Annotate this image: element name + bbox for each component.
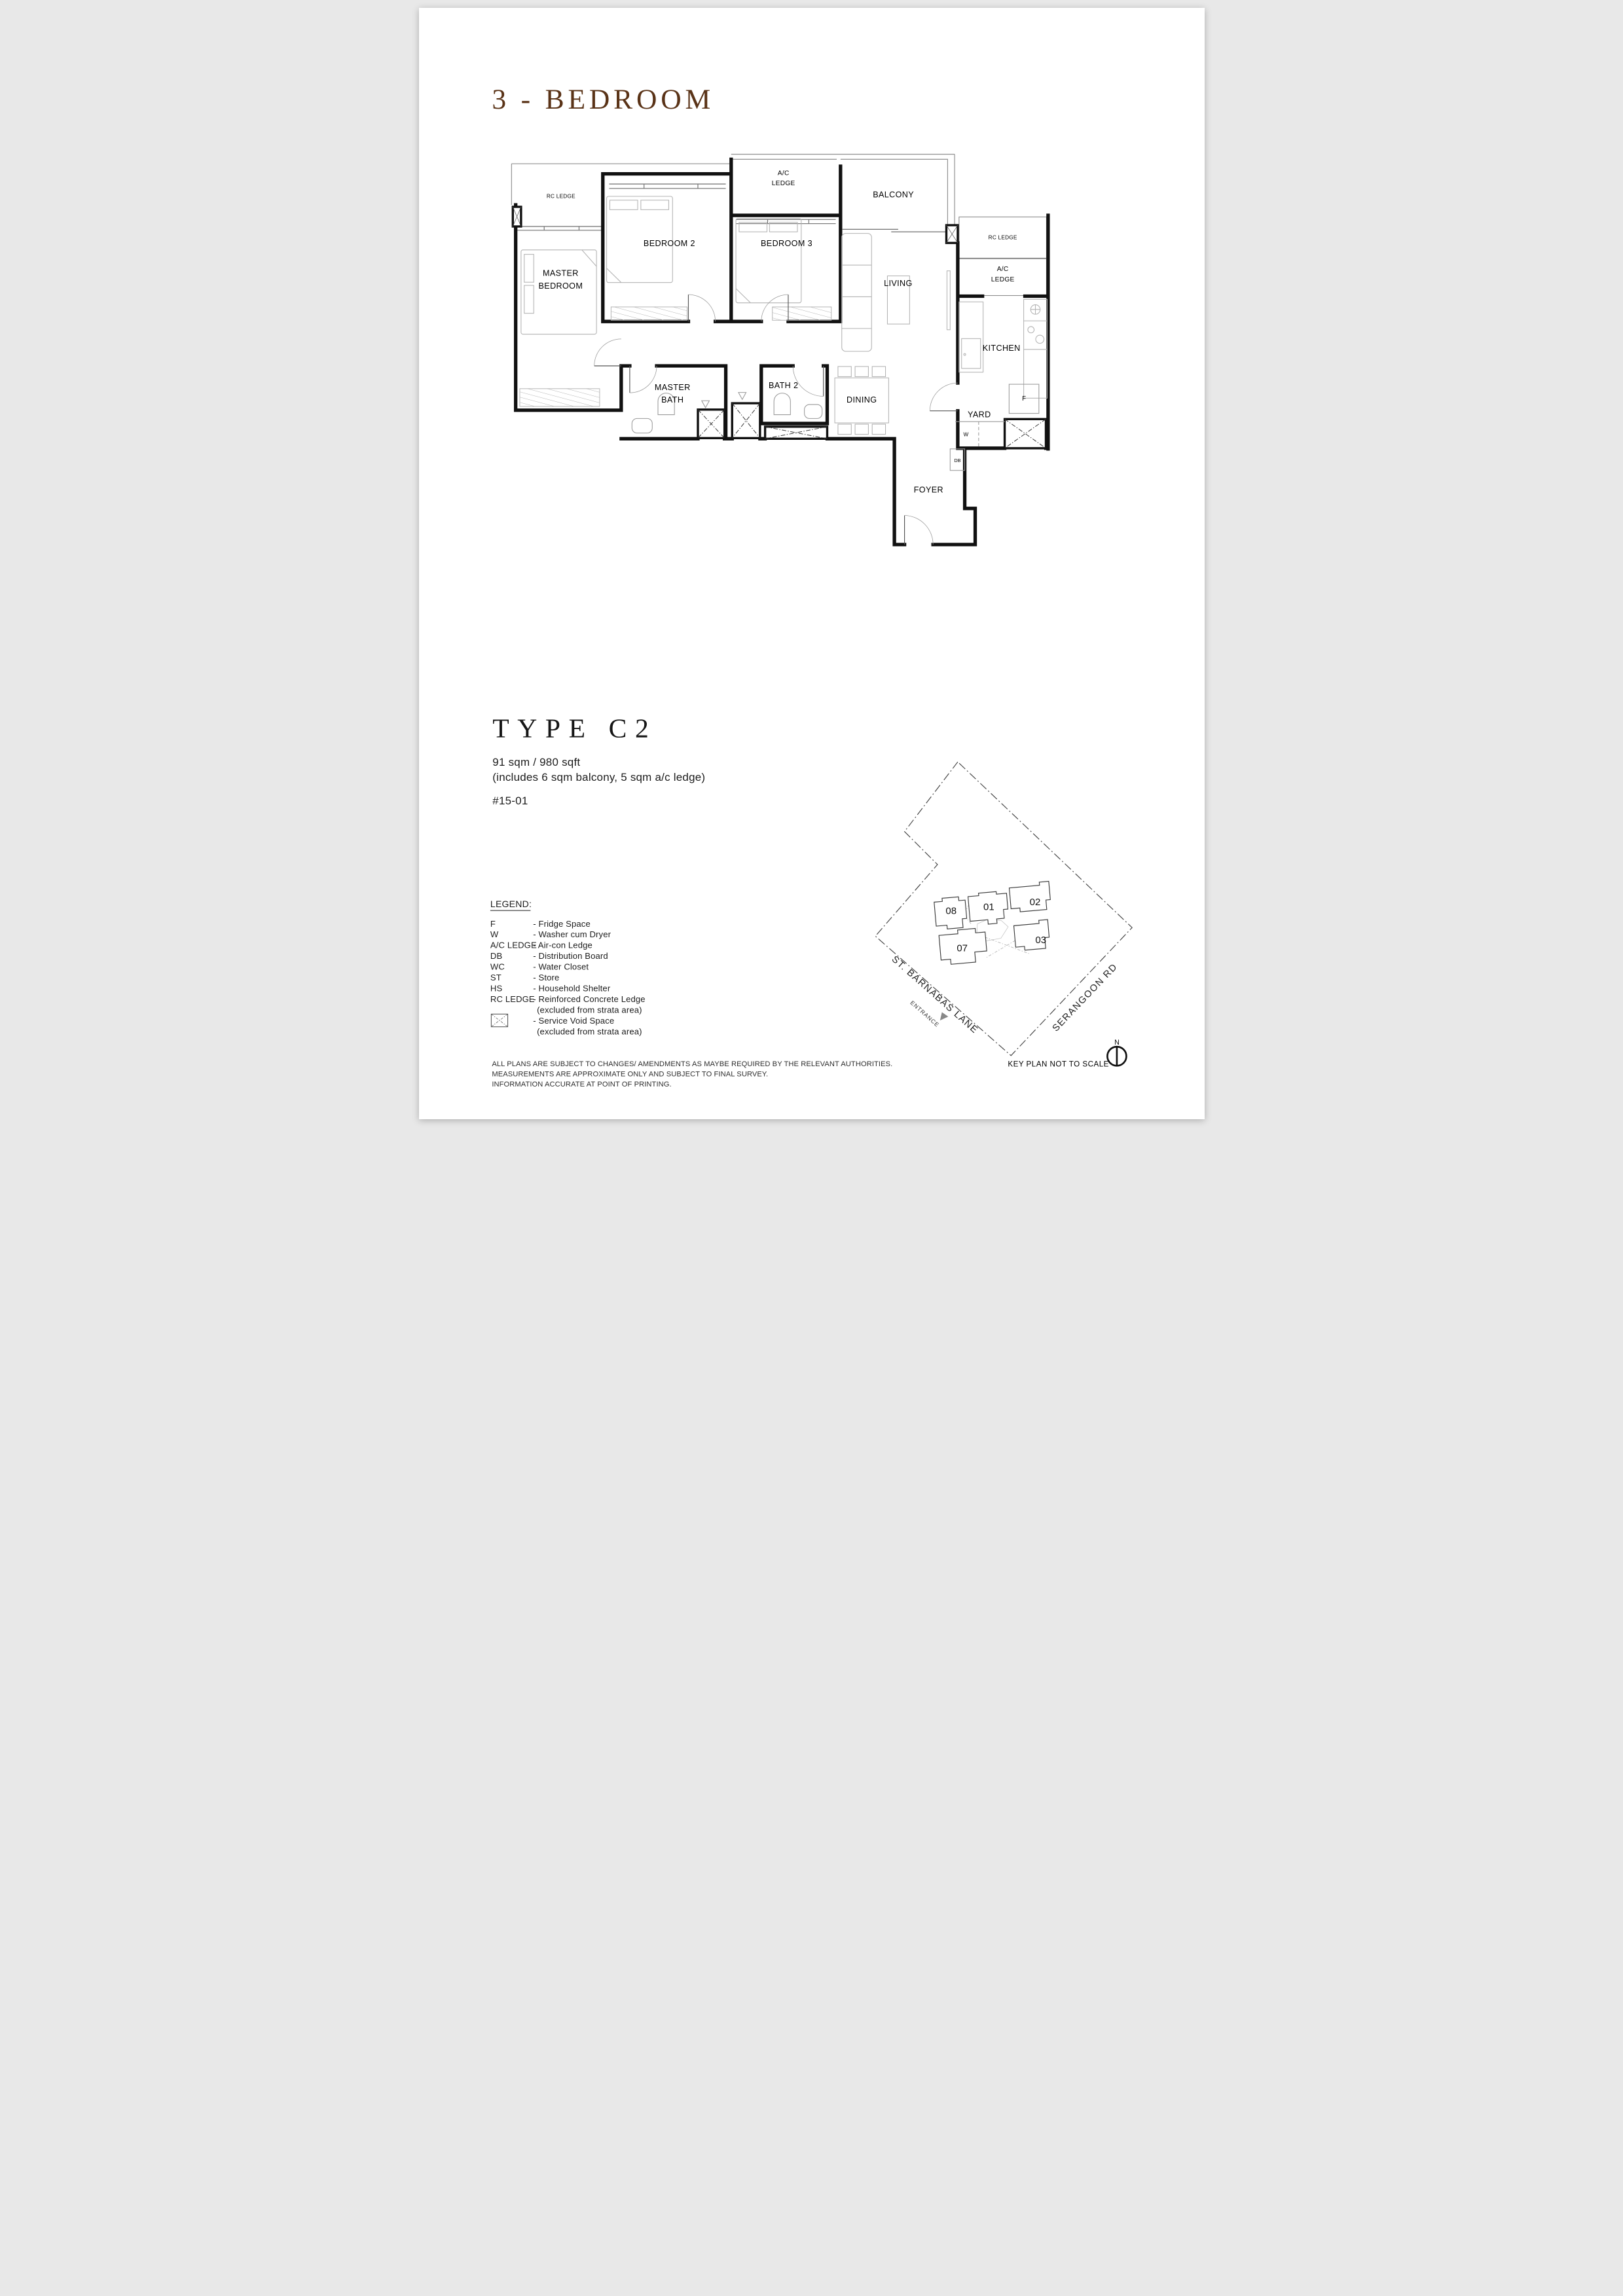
label-dining: DINING bbox=[847, 395, 877, 404]
legend-desc-st: - Store bbox=[533, 973, 559, 982]
label-master-bath-2: BATH bbox=[661, 395, 684, 404]
unit-label-01: 01 bbox=[983, 902, 994, 913]
key-plan: 08 01 02 07 03 ST. BARNABAS LANE ENTRANC… bbox=[875, 762, 1132, 1069]
label-rc-ledge-left: RC LEDGE bbox=[546, 193, 575, 199]
unit-label-08: 08 bbox=[945, 905, 957, 916]
page-title: 3 - BEDROOM bbox=[492, 84, 714, 115]
legend-key-db: DB bbox=[490, 951, 502, 961]
label-master-bath-1: MASTER bbox=[654, 383, 690, 392]
label-ac-ledge-right-2: LEDGE bbox=[991, 276, 1014, 283]
unit-label-02: 02 bbox=[1029, 897, 1040, 908]
legend-desc-rc: - Reinforced Concrete Ledge bbox=[533, 994, 645, 1004]
legend-key-hs: HS bbox=[490, 984, 502, 994]
label-ac-ledge-top-1: A/C bbox=[777, 170, 789, 177]
legend-desc-f: - Fridge Space bbox=[533, 919, 591, 929]
type-heading: TYPE C2 bbox=[492, 713, 657, 744]
legend-desc-w: - Washer cum Dryer bbox=[533, 929, 611, 939]
disclaimer-line3: INFORMATION ACCURATE AT POINT OF PRINTIN… bbox=[492, 1081, 671, 1088]
legend-key-wc: WC bbox=[490, 962, 504, 972]
brochure-page: 3 - BEDROOM bbox=[419, 8, 1205, 1119]
label-yard: YARD bbox=[968, 410, 991, 419]
street-serangoon-rd: SERANGOON RD bbox=[1050, 961, 1120, 1033]
floorplan-sheet: 3 - BEDROOM bbox=[419, 8, 1205, 1119]
label-fridge: F bbox=[1022, 395, 1026, 403]
label-ac-ledge-right-1: A/C bbox=[996, 266, 1008, 273]
label-master-1: MASTER bbox=[543, 269, 579, 278]
legend-key-f: F bbox=[490, 919, 495, 929]
legend-desc2-void: (excluded from strata area) bbox=[537, 1026, 642, 1036]
legend-desc-void: - Service Void Space bbox=[533, 1016, 614, 1026]
unit-info: TYPE C2 91 sqm / 980 sqft (includes 6 sq… bbox=[492, 713, 705, 807]
page-wrapper: 3 - BEDROOM bbox=[0, 0, 1623, 1127]
legend-key-rc: RC LEDGE bbox=[490, 994, 534, 1004]
entrance-arrow-icon bbox=[939, 1012, 948, 1020]
unit-label-07: 07 bbox=[957, 943, 968, 954]
doors bbox=[594, 295, 957, 545]
unit-area-note: (includes 6 sqm balcony, 5 sqm a/c ledge… bbox=[492, 771, 705, 783]
disclaimer-line1: ALL PLANS ARE SUBJECT TO CHANGES/ AMENDM… bbox=[492, 1060, 892, 1068]
label-living: LIVING bbox=[884, 279, 913, 288]
label-foyer: FOYER bbox=[913, 486, 943, 495]
north-arrow-icon: N bbox=[1107, 1039, 1126, 1066]
label-washer: W bbox=[963, 431, 968, 437]
key-plan-note: KEY PLAN NOT TO SCALE bbox=[1008, 1060, 1108, 1069]
floor-plan: RC LEDGE A/C LEDGE BALCONY BEDROOM 2 BED… bbox=[511, 154, 1048, 545]
legend-key-w: W bbox=[490, 929, 498, 939]
north-label: N bbox=[1114, 1039, 1120, 1047]
label-ac-ledge-top-2: LEDGE bbox=[771, 180, 795, 187]
label-balcony: BALCONY bbox=[873, 190, 914, 199]
legend-desc-hs: - Household Shelter bbox=[533, 984, 611, 994]
window-box-living bbox=[946, 225, 957, 243]
unit-number: #15-01 bbox=[492, 795, 528, 807]
label-kitchen: KITCHEN bbox=[982, 344, 1020, 353]
window-box-master bbox=[513, 207, 521, 226]
legend-desc-wc: - Water Closet bbox=[533, 962, 589, 972]
label-bedroom2: BEDROOM 2 bbox=[643, 239, 695, 248]
entrance-label: ENTRANCE bbox=[909, 999, 940, 1028]
legend-heading: LEGEND: bbox=[490, 899, 531, 909]
label-rc-ledge-right: RC LEDGE bbox=[988, 234, 1017, 240]
label-bedroom3: BEDROOM 3 bbox=[761, 239, 812, 248]
label-db: DB bbox=[954, 457, 960, 463]
unit-area: 91 sqm / 980 sqft bbox=[492, 756, 580, 768]
disclaimer-line2: MEASUREMENTS ARE APPROXIMATE ONLY AND SU… bbox=[492, 1070, 768, 1078]
unit-label-03: 03 bbox=[1035, 935, 1046, 946]
legend-desc-ac: - Air-con Ledge bbox=[533, 941, 593, 950]
legend-key-ac: A/C LEDGE bbox=[490, 941, 536, 950]
legend-desc-db: - Distribution Board bbox=[533, 951, 608, 961]
service-void-icon bbox=[491, 1014, 507, 1026]
key-plan-buildings bbox=[933, 882, 1055, 965]
legend: LEGEND: F - Fridge Space W - Washer cum … bbox=[490, 899, 645, 1037]
disclaimer: ALL PLANS ARE SUBJECT TO CHANGES/ AMENDM… bbox=[492, 1060, 892, 1088]
label-bath2: BATH 2 bbox=[768, 381, 797, 390]
legend-desc2-rc: (excluded from strata area) bbox=[537, 1005, 642, 1014]
label-master-2: BEDROOM bbox=[538, 281, 583, 291]
legend-key-st: ST bbox=[490, 973, 501, 982]
